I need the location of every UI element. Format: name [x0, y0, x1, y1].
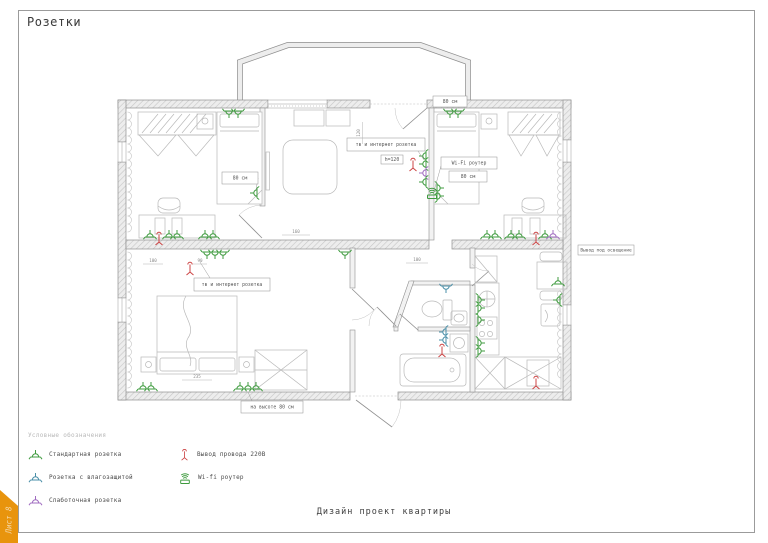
dimension: 235: [182, 374, 212, 380]
socket-standard-icon: [552, 277, 565, 286]
svg-text:h=120: h=120: [385, 157, 400, 163]
legend-item-label: Вывод провода 220В: [197, 451, 266, 458]
socket-standard-icon: [476, 345, 485, 358]
socket-standard-icon: [137, 382, 150, 391]
plan-label: Вывод под освещение: [578, 245, 634, 255]
socket-standard-icon: [28, 448, 43, 461]
bed: [157, 296, 237, 374]
socket-standard-icon: [419, 150, 428, 163]
windows: [118, 100, 571, 325]
chair: [522, 198, 544, 213]
dimension: 100: [406, 257, 428, 263]
chair: [540, 252, 562, 261]
plan-label: 80 см: [433, 96, 467, 107]
legend-heading: Условные обозначения: [28, 432, 368, 439]
legend-item: Вывод провода 220В: [178, 448, 266, 461]
washing-machine: [450, 334, 468, 352]
nightstand: [481, 114, 497, 129]
svg-text:80 см: 80 см: [233, 176, 248, 182]
svg-text:160: 160: [292, 229, 300, 234]
svg-text:80 см: 80 см: [461, 174, 476, 180]
svg-text:100: 100: [413, 257, 421, 262]
bay-window-wall: [240, 45, 468, 100]
svg-text:90: 90: [197, 258, 203, 263]
project-title: Дизайн проект квартиры: [0, 507, 768, 517]
legend: Условные обозначения Стандартная розетка…: [28, 432, 368, 446]
legend-item: Слаботочная розетка: [28, 494, 133, 507]
oven: [527, 360, 549, 386]
toilet: [422, 301, 442, 317]
svg-text:Wi-Fi роутер: Wi-Fi роутер: [452, 161, 487, 167]
svg-text:на высоте 80 см: на высоте 80 см: [250, 405, 293, 411]
socket-standard-icon: [419, 176, 428, 189]
console: [294, 110, 324, 126]
console: [326, 110, 350, 126]
sheet-page: Розетки: [0, 0, 768, 543]
master-bedroom-furniture: [141, 296, 307, 390]
bathroom-furniture: [400, 300, 468, 386]
sink: [451, 311, 467, 325]
socket-moisture-icon: [28, 471, 43, 484]
legend-item-label: Слаботочная розетка: [49, 497, 121, 504]
socket-low-voltage-icon: [419, 167, 428, 180]
legend-column-right: Вывод провода 220В Wi-fi роутер: [178, 448, 266, 494]
svg-text:тв и интернет розетка: тв и интернет розетка: [202, 283, 263, 288]
socket-standard-icon: [145, 382, 158, 391]
socket-standard-icon: [234, 382, 247, 391]
wifi-router-icon: [178, 472, 192, 484]
wire-output-icon: [178, 448, 191, 461]
svg-text:235: 235: [193, 374, 201, 379]
svg-text:80 см: 80 см: [443, 99, 458, 105]
dimension: 160: [282, 229, 310, 235]
socket-standard-icon: [209, 250, 222, 259]
wire-output-icon: [410, 158, 417, 171]
dimension: 100: [143, 258, 163, 264]
legend-item: Wi-fi роутер: [178, 471, 266, 484]
dimension: 90: [193, 258, 207, 264]
wire-output-icon: [533, 376, 540, 389]
rug: [283, 140, 337, 194]
socket-standard-icon: [489, 230, 502, 239]
kitchen-furniture: [475, 252, 567, 389]
svg-text:Вывод под освещение: Вывод под освещение: [580, 248, 632, 254]
svg-text:тв и интернет розетка: тв и интернет розетка: [356, 143, 417, 148]
socket-low-voltage-icon: [28, 494, 43, 507]
svg-text:100: 100: [149, 258, 157, 263]
legend-item-label: Wi-fi роутер: [198, 474, 244, 481]
plan-label: тв и интернет розетка: [194, 262, 270, 291]
legend-item: Стандартная розетка: [28, 448, 133, 461]
plan-label: h=120: [381, 155, 403, 164]
legend-item-label: Розетка с влагозащитой: [49, 474, 133, 481]
chair: [158, 198, 180, 213]
socket-standard-icon: [217, 250, 230, 259]
nightstand: [239, 357, 254, 372]
svg-text:120: 120: [356, 129, 361, 137]
chair: [540, 291, 562, 300]
socket-standard-icon: [476, 294, 485, 307]
legend-item: Розетка с влагозащитой: [28, 471, 133, 484]
legend-item-label: Стандартная розетка: [49, 451, 121, 458]
living-furniture: [266, 110, 350, 194]
stool: [541, 304, 560, 326]
plan-label: 80 см: [449, 171, 487, 182]
nightstand: [141, 357, 156, 372]
socket-standard-icon: [242, 382, 255, 391]
socket-standard-icon: [481, 230, 494, 239]
wire-output-icon: [187, 262, 194, 275]
socket-standard-icon: [339, 250, 352, 259]
tv: [266, 152, 270, 190]
